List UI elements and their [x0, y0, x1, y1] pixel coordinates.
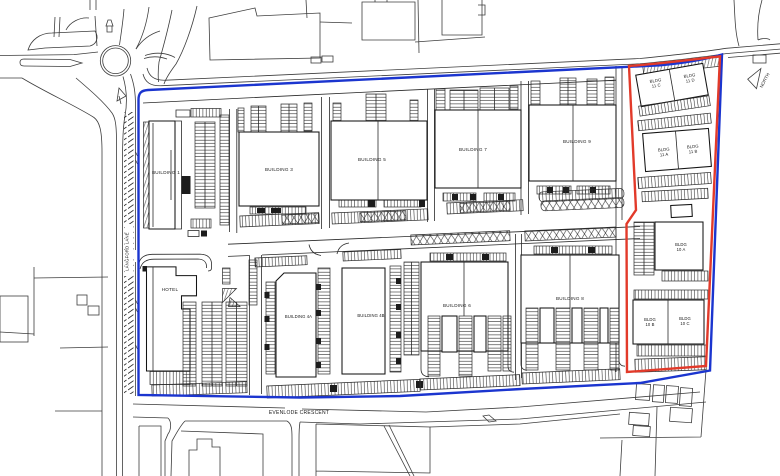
svg-text:LANGFORD LANE: LANGFORD LANE — [125, 232, 130, 271]
svg-text:10 C: 10 C — [680, 321, 689, 326]
svg-text:HOTEL: HOTEL — [162, 287, 179, 292]
svg-text:BUILDING 7: BUILDING 7 — [459, 147, 487, 152]
svg-text:BUILDING 9: BUILDING 9 — [563, 139, 591, 144]
svg-text:11 B: 11 B — [689, 149, 698, 155]
svg-text:EVENLODE CRESCENT: EVENLODE CRESCENT — [269, 410, 329, 416]
svg-text:BUILDING 4A: BUILDING 4A — [285, 314, 312, 319]
svg-text:BUILDING 1: BUILDING 1 — [152, 170, 180, 175]
svg-text:11 A: 11 A — [660, 152, 669, 158]
svg-text:BUILDING 5: BUILDING 5 — [358, 157, 386, 162]
svg-text:BUILDING 4B: BUILDING 4B — [357, 313, 384, 318]
svg-text:10 B: 10 B — [645, 322, 654, 327]
svg-text:BUILDING 8: BUILDING 8 — [556, 296, 584, 301]
svg-text:10 A: 10 A — [677, 247, 686, 252]
svg-text:BUILDING 6: BUILDING 6 — [443, 303, 471, 308]
svg-text:BUILDING 3: BUILDING 3 — [265, 167, 293, 172]
